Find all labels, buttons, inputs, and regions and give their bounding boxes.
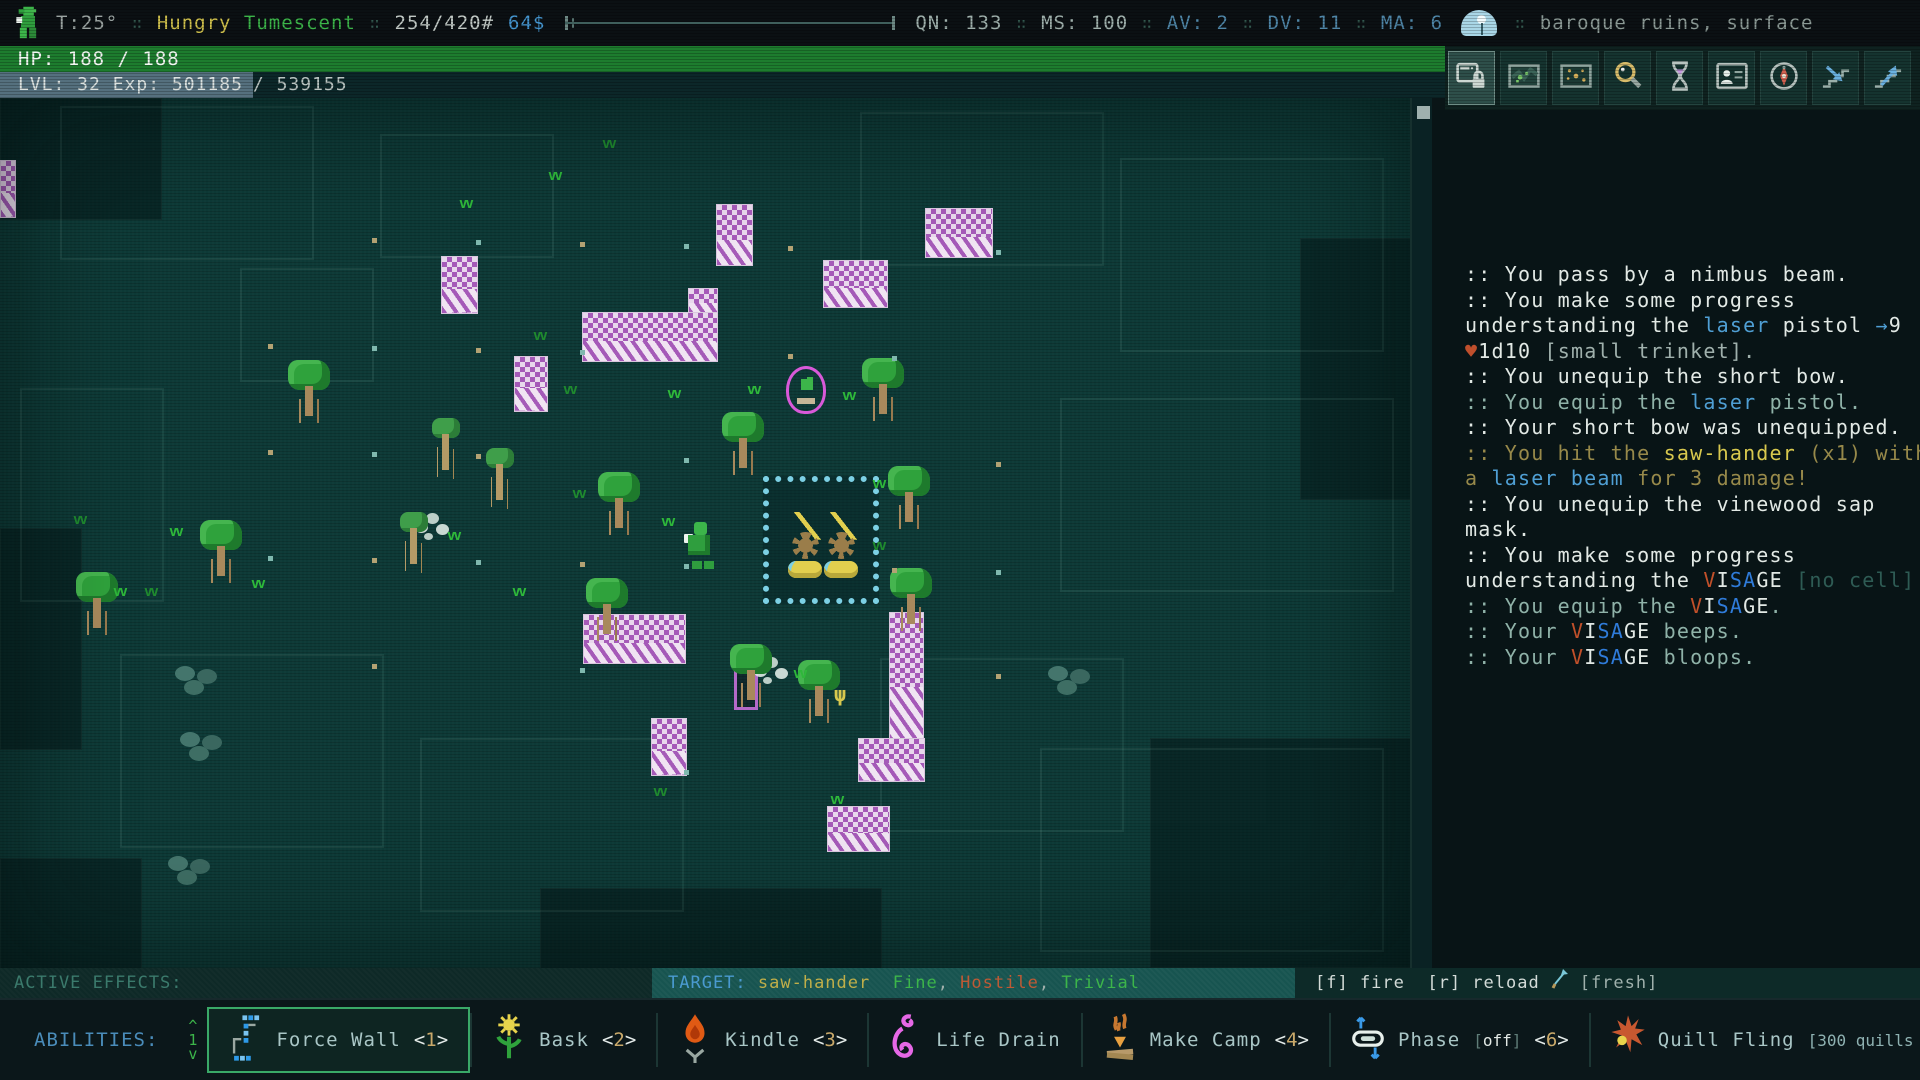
ruin-wall: [823, 260, 888, 308]
ruin-wall: [582, 312, 718, 362]
ground-dot: [996, 462, 1001, 467]
log-line: :: You unequip the short bow.: [1465, 364, 1920, 390]
tree: [584, 578, 630, 636]
text-segment: Trivial: [1061, 973, 1140, 993]
ability-hotkey: <3>: [813, 1029, 847, 1051]
text-segment: 1d10: [1478, 339, 1544, 363]
wait-button[interactable]: [1656, 51, 1703, 105]
grass-tuft: vv: [563, 382, 576, 398]
stairs-down-icon: [1819, 59, 1853, 97]
text-segment: :: You make some progress: [1465, 288, 1796, 312]
grass-tuft: vv: [572, 486, 585, 502]
grass-tuft: vv: [872, 538, 885, 554]
time-slider[interactable]: [565, 16, 895, 30]
ruin-wall: [889, 612, 924, 742]
text-segment: S: [1597, 619, 1610, 643]
log-line: :: You equip the VISAGE.: [1465, 594, 1920, 620]
text-segment: I: [1584, 619, 1597, 643]
temperature-label: T:25°: [56, 12, 118, 34]
grass-tuft: vv: [459, 196, 472, 212]
ruin-wall: [858, 738, 925, 782]
ability-label: Kindle: [725, 1029, 800, 1051]
text-segment: V: [1703, 568, 1716, 592]
text-segment: :: You pass by a nimbus beam.: [1465, 262, 1849, 286]
stairs-up-button[interactable]: [1864, 51, 1911, 105]
log-line: understanding the VISAGE [no cell].: [1465, 568, 1920, 594]
log-line: :: Your short bow was unequipped.: [1465, 415, 1920, 441]
text-segment: pistol: [1770, 313, 1876, 337]
active-effects-label: ACTIVE EFFECTS:: [14, 973, 183, 993]
text-segment: mask.: [1465, 517, 1531, 541]
text-segment: bloops.: [1650, 645, 1756, 669]
text-segment: I: [1717, 568, 1730, 592]
grass-tuft: vv: [830, 792, 843, 808]
tree: [286, 360, 332, 418]
log-line: ♥1d10 [small trinket].: [1465, 339, 1920, 365]
grass-tuft: vv: [169, 524, 182, 540]
character-icon: [1715, 59, 1749, 97]
rubble: [168, 856, 188, 871]
ability-bask[interactable]: Bask<2>: [472, 1007, 656, 1073]
ruin-wall: [688, 288, 718, 314]
grass-tuft: vv: [144, 584, 157, 600]
ground-dot: [892, 356, 897, 361]
ground-dot: [580, 562, 585, 567]
grass-tuft: vv: [113, 584, 126, 600]
text-segment: laser: [1690, 390, 1756, 414]
mini-map-icon: [1559, 59, 1593, 97]
exp-bar-remainder: / 539155: [253, 72, 348, 98]
inspect-button[interactable]: [1604, 51, 1651, 105]
grass-tuft: vv: [842, 388, 855, 404]
tree: [720, 412, 766, 470]
ui-lock-icon: [1455, 59, 1489, 97]
separator: ∷: [132, 14, 143, 33]
text-segment: saw-hander: [758, 973, 870, 993]
log-line: :: You make some progress: [1465, 543, 1920, 569]
text-segment: A: [1730, 594, 1743, 618]
compass-icon: [1767, 59, 1801, 97]
text-segment: A: [1743, 568, 1756, 592]
ability-label: Life Drain: [936, 1029, 1060, 1051]
text-segment: S: [1597, 645, 1610, 669]
ammo-status-label: [fresh]: [1580, 968, 1659, 998]
ruin-outline: [60, 106, 314, 260]
saw-hander-sprite[interactable]: [824, 512, 860, 578]
grass-tuft: vv: [747, 382, 760, 398]
text-segment: ♥: [1465, 339, 1478, 363]
quill-fling-icon: [1611, 1013, 1645, 1067]
ground-dot: [684, 770, 689, 775]
mini-map-button[interactable]: [1552, 51, 1599, 105]
text-segment: I: [1584, 645, 1597, 669]
ruin-outline: [120, 654, 384, 848]
stairs-up-icon: [1871, 59, 1905, 97]
text-segment: S: [1730, 568, 1743, 592]
text-segment: [870, 973, 892, 993]
stairs-down-button[interactable]: [1812, 51, 1859, 105]
grass-tuft: vv: [872, 476, 885, 492]
world-map-icon: [1507, 59, 1541, 97]
separator: ∷: [1515, 14, 1526, 33]
text-segment: understanding the: [1465, 568, 1703, 592]
inspect-icon: [1611, 59, 1645, 97]
text-segment: off: [1483, 1031, 1512, 1050]
text-segment: [no cell]: [1796, 568, 1915, 592]
status-row: ACTIVE EFFECTS: TARGET: saw-hander Fine,…: [0, 968, 1920, 998]
text-segment: :: You unequip the vinewood sap: [1465, 492, 1875, 516]
ability-suffix: [300 quills left]: [1808, 1031, 1920, 1050]
abilities-pager: ^ 1 v: [188, 1019, 197, 1061]
tree: [198, 520, 244, 578]
grass-tuft: vv: [661, 514, 674, 530]
phase-icon: [1351, 1013, 1385, 1067]
moon-phase-icon: [1461, 10, 1497, 36]
rubble: [175, 666, 195, 681]
text-segment: TARGET:: [668, 973, 758, 993]
text-segment: [: [1473, 1031, 1483, 1050]
ability-make-camp[interactable]: Make Camp<4>: [1083, 1007, 1329, 1073]
separator: ∷: [1243, 14, 1254, 33]
text-segment: V: [1690, 594, 1703, 618]
ground-dot: [476, 348, 481, 353]
ability-label: Make Camp: [1150, 1029, 1262, 1051]
toolbar: [1445, 46, 1920, 105]
text-segment: GE: [1624, 619, 1650, 643]
ability-suffix: [off]: [1473, 1031, 1521, 1050]
log-line: mask.: [1465, 517, 1920, 543]
ammo-arrow-icon: [1550, 967, 1570, 999]
text-segment: Hostile: [960, 973, 1039, 993]
ground-dot: [788, 354, 793, 359]
grass-tuft: vv: [548, 168, 561, 184]
ground-dot: [684, 564, 689, 569]
grass-tuft: vv: [602, 136, 615, 152]
text-segment: .: [1915, 568, 1920, 592]
text-segment: .: [1770, 594, 1783, 618]
map-scrollbar[interactable]: [1410, 98, 1432, 968]
toolbar-strip: [1445, 46, 1920, 110]
ground-dot: [476, 240, 481, 245]
exp-bar-fill: LVL: 32 Exp: 501185: [0, 72, 253, 98]
grass-tuft: vv: [793, 666, 806, 682]
ground-dot: [372, 238, 377, 243]
ruin-outline: [1120, 158, 1384, 352]
log-line: understanding the laser pistol →9: [1465, 313, 1920, 339]
text-segment: GE: [1756, 568, 1796, 592]
tree: [596, 472, 642, 530]
ruin-outline: [1060, 398, 1394, 592]
text-segment: pistol.: [1756, 390, 1862, 414]
ruin-wall: [827, 806, 890, 852]
ruin-outline: [20, 388, 164, 602]
text-segment: S: [1717, 594, 1730, 618]
log-line: :: You unequip the vinewood sap: [1465, 492, 1920, 518]
ability-force-wall[interactable]: Force Wall<1>: [207, 1007, 470, 1073]
ability-label: Force Wall: [276, 1029, 400, 1051]
ground-dot: [996, 674, 1001, 679]
wait-icon: [1663, 59, 1697, 97]
ground-dot: [268, 344, 273, 349]
ruin-block: [0, 858, 142, 968]
ground-dot: [268, 450, 273, 455]
text-segment: A: [1611, 619, 1624, 643]
text-segment: (x1) with: [1796, 441, 1920, 465]
ground-dot: [580, 668, 585, 673]
text-segment: V: [1571, 645, 1584, 669]
player-avatar-icon[interactable]: [14, 5, 42, 41]
log-line: :: Your VISAGE beeps.: [1465, 619, 1920, 645]
rubble: [1048, 666, 1068, 681]
tree: [886, 466, 932, 524]
status-effects: Hungry Tumescent: [157, 12, 356, 34]
log-line: :: You pass by a nimbus beam.: [1465, 262, 1920, 288]
ability-quill-fling[interactable]: Quill Fling[300 quills left]<7>: [1591, 1007, 1920, 1073]
text-segment: :: You unequip the short bow.: [1465, 364, 1849, 388]
separator: ∷: [370, 14, 381, 33]
ruin-wall: [441, 256, 478, 314]
log-line: :: You hit the saw-hander (x1) with: [1465, 441, 1920, 467]
dry-tree: [394, 512, 434, 566]
dry-tree: [426, 418, 466, 472]
ability-hotkey: <1>: [414, 1029, 448, 1051]
dry-tree: [480, 448, 520, 502]
ruin-wall: [651, 718, 687, 776]
separator: ∷: [1016, 14, 1027, 33]
ui-lock-button[interactable]: [1448, 51, 1495, 105]
ability-label: Bask: [539, 1029, 589, 1051]
text-segment: :: Your: [1465, 645, 1571, 669]
ground-dot: [892, 568, 897, 573]
text-segment: [300 quills left]: [1808, 1031, 1920, 1050]
ground-dot: [268, 556, 273, 561]
ability-hotkey: <6>: [1534, 1029, 1568, 1051]
stat-ma: MA: 6: [1381, 12, 1443, 34]
text-segment: :: You hit the: [1465, 441, 1664, 465]
ability-kindle[interactable]: Kindle<3>: [658, 1007, 867, 1073]
ruin-wall: [0, 160, 16, 218]
text-segment: :: You equip the: [1465, 594, 1690, 618]
ability-label: Phase: [1398, 1029, 1460, 1051]
ground-dot: [580, 242, 585, 247]
text-segment: for 3 damage!: [1624, 466, 1809, 490]
game-map-viewport[interactable]: ψvvvvvvvvvvvvvvvvvvvvvvvvvvvvvvvvvvvvvvv…: [0, 98, 1410, 968]
log-line: :: Your VISAGE bloops.: [1465, 645, 1920, 671]
text-segment: V: [1571, 619, 1584, 643]
stat-readouts: QN: 133∷MS: 100∷AV: 2∷DV: 11∷MA: 6: [915, 12, 1443, 34]
grass-tuft: vv: [251, 576, 264, 592]
ruin-wall: [716, 204, 753, 266]
ruin-wall: [514, 356, 548, 412]
text-segment: beeps.: [1650, 619, 1743, 643]
fire-reload-hints: [f] fire [r] reload: [1315, 968, 1540, 998]
separator: ∷: [1142, 14, 1153, 33]
text-segment: laser: [1703, 313, 1769, 337]
life-drain-icon: [889, 1013, 923, 1067]
text-segment: GE: [1743, 594, 1769, 618]
log-line: a laser beam for 3 damage!: [1465, 466, 1920, 492]
ability-label: Quill Fling: [1658, 1029, 1795, 1051]
text-segment: :: You make some progress: [1465, 543, 1796, 567]
stat-ms: MS: 100: [1041, 12, 1128, 34]
ground-dot: [372, 452, 377, 457]
active-effects-bar: ACTIVE EFFECTS:: [0, 968, 652, 998]
world-map-button[interactable]: [1500, 51, 1547, 105]
text-segment: I: [1703, 594, 1716, 618]
make-camp-icon: [1103, 1013, 1137, 1067]
status-effect-hungry: Hungry: [157, 12, 232, 34]
tree: [74, 572, 120, 630]
bubble-creature[interactable]: [786, 366, 826, 414]
text-segment: laser beam: [1491, 466, 1623, 490]
tree: [888, 568, 934, 626]
text-segment: saw-hander: [1664, 441, 1796, 465]
force-wall-icon: [229, 1013, 263, 1067]
ground-dot: [996, 250, 1001, 255]
hp-bar: HP: 188 / 188: [0, 46, 1445, 72]
text-segment: :: Your short bow was unequipped.: [1465, 415, 1902, 439]
ability-hotkey: <2>: [602, 1029, 636, 1051]
stat-qn: QN: 133: [915, 12, 1002, 34]
location-label: baroque ruins, surface: [1540, 12, 1814, 34]
text-segment: A: [1611, 645, 1624, 669]
ability-list: Force Wall<1>Bask<2>Kindle<3>Life DrainM…: [207, 1007, 1920, 1073]
stat-dv: DV: 11: [1268, 12, 1343, 34]
abilities-label: ABILITIES:: [34, 1029, 158, 1051]
ability-life-drain[interactable]: Life Drain: [869, 1007, 1080, 1073]
kindle-icon: [678, 1013, 712, 1067]
text-segment: →: [1876, 313, 1889, 337]
ground-dot: [372, 346, 377, 351]
text-segment: Fine: [893, 973, 938, 993]
status-effect-tumescent: Tumescent: [231, 12, 355, 34]
character-button[interactable]: [1708, 51, 1755, 105]
text-segment: ,: [1039, 973, 1061, 993]
bask-icon: [492, 1013, 526, 1067]
log-line: :: You make some progress: [1465, 288, 1920, 314]
text-segment: :: You equip the: [1465, 390, 1690, 414]
grass-tuft: vv: [512, 584, 525, 600]
ruin-outline: [420, 738, 684, 912]
ground-dot: [684, 458, 689, 463]
stat-av: AV: 2: [1167, 12, 1229, 34]
abilities-bar: ABILITIES: ^ 1 v Force Wall<1>Bask<2>Kin…: [0, 998, 1920, 1080]
text-segment: a: [1465, 466, 1491, 490]
grass-tuft: vv: [533, 328, 546, 344]
grass-tuft: vv: [653, 784, 666, 800]
ability-hotkey: <4>: [1275, 1029, 1309, 1051]
message-log[interactable]: :: You pass by a nimbus beam.:: You make…: [1432, 110, 1920, 968]
player-character[interactable]: [684, 522, 712, 566]
map-scrollbar-thumb[interactable]: [1417, 106, 1430, 119]
exp-bar: LVL: 32 Exp: 501185 / 539155: [0, 72, 1445, 98]
separator: ∷: [1356, 14, 1367, 33]
grass-tuft: vv: [447, 528, 460, 544]
ground-dot: [996, 570, 1001, 575]
text-segment: :: Your: [1465, 619, 1571, 643]
text-segment: ]: [1512, 1031, 1522, 1050]
pager-down-button[interactable]: v: [188, 1047, 197, 1061]
ground-dot: [580, 350, 585, 355]
tree: [728, 644, 774, 702]
text-segment: ,: [938, 973, 960, 993]
text-segment: GE: [1624, 645, 1650, 669]
grass-tuft: vv: [667, 386, 680, 402]
ruin-outline: [1040, 748, 1384, 952]
ground-dot: [476, 560, 481, 565]
compass-button[interactable]: [1760, 51, 1807, 105]
log-line: :: You equip the laser pistol.: [1465, 390, 1920, 416]
ground-dot: [684, 244, 689, 249]
fire-hint-bar: [f] fire [r] reload [fresh]: [1295, 968, 1920, 998]
text-segment: understanding the: [1465, 313, 1703, 337]
ground-dot: [372, 664, 377, 669]
ability-phase[interactable]: Phase[off]<6>: [1331, 1007, 1589, 1073]
hp-value: HP: 188 / 188: [18, 48, 180, 70]
ruin-wall: [925, 208, 993, 258]
carry-weight-label: 254/420#: [395, 12, 495, 34]
text-segment: 9: [1889, 313, 1902, 337]
grass-tuft: vv: [73, 512, 86, 528]
ground-dot: [372, 558, 377, 563]
target-bar[interactable]: TARGET: saw-hander Fine, Hostile, Trivia…: [652, 968, 1295, 998]
saw-hander-sprite[interactable]: [788, 512, 824, 578]
top-status-bar: T:25° ∷ Hungry Tumescent ∷ 254/420# 64$ …: [0, 0, 1920, 46]
ground-dot: [788, 246, 793, 251]
tree: [860, 358, 906, 416]
money-label: 64$: [508, 12, 545, 34]
ground-dot: [476, 454, 481, 459]
text-segment: [small trinket].: [1544, 339, 1756, 363]
rubble: [180, 732, 200, 747]
